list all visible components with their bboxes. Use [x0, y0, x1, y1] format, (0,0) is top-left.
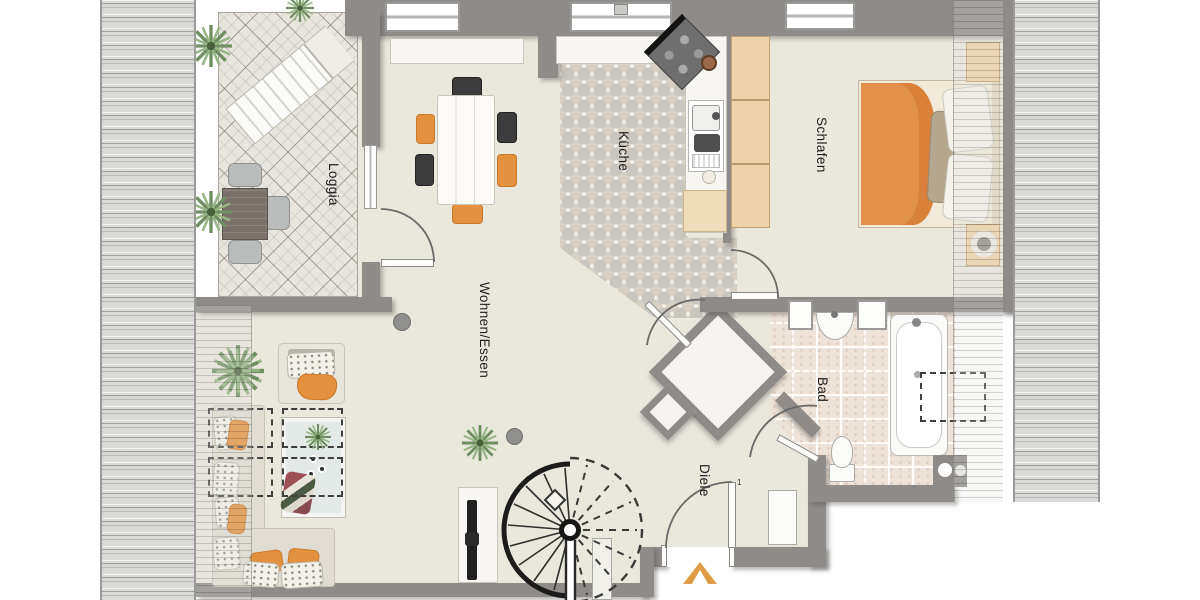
roof-overlay-left	[196, 305, 252, 600]
wall-stub-kitchen	[538, 36, 558, 78]
dining-chair	[416, 114, 435, 144]
dining-chair	[497, 112, 517, 143]
wall-bedroom-east	[1003, 0, 1013, 312]
wardrobe	[731, 36, 770, 228]
bed-blanket	[861, 83, 935, 225]
entrance-door-post	[661, 545, 667, 567]
stool	[506, 428, 523, 445]
sink-basin-dark	[694, 134, 720, 152]
basin-faucet-icon	[831, 311, 838, 318]
entrance-door-number: 1	[737, 478, 741, 487]
bed-blanket-fold	[861, 83, 919, 225]
room-label-bad: Bad	[815, 377, 830, 402]
tub-faucet-icon	[912, 318, 921, 327]
bowl-icon	[702, 170, 716, 184]
tv-stand	[465, 532, 479, 546]
bath-niche-right	[857, 300, 887, 330]
loggia-chair-bottom	[228, 240, 262, 264]
room-label-schlafen: Schlafen	[814, 117, 829, 173]
stair-side-wall	[592, 538, 612, 600]
hall-cabinet	[768, 490, 797, 545]
loggia-table	[222, 188, 268, 240]
dining-chair	[452, 204, 483, 224]
window-vent-icon	[614, 4, 628, 15]
loggia-door-leaf	[381, 259, 434, 267]
shaft-opening-icon	[938, 463, 952, 477]
toilet-bowl	[831, 436, 853, 468]
bedroom-door-leaf	[731, 292, 778, 300]
wall-loggia-east-lower	[362, 262, 380, 302]
room-label-kueche: Küche	[616, 131, 631, 171]
kitchen-cabinet-low	[683, 190, 727, 232]
dining-chair	[497, 154, 517, 187]
room-label-diele: Diele	[697, 464, 712, 497]
loggia-chair-top	[228, 163, 262, 187]
stool	[393, 313, 411, 331]
room-label-wohnen-essen: Wohnen/Essen	[477, 282, 492, 378]
armchair-throw	[297, 373, 338, 400]
floor-plan: 1	[0, 0, 1200, 600]
roof-band-right	[1013, 0, 1100, 502]
dining-table	[437, 95, 495, 205]
window-living	[385, 2, 460, 32]
bath-niche-left	[788, 300, 813, 330]
armchair	[278, 343, 345, 404]
window-bedroom	[785, 2, 855, 30]
entrance-door-leaf	[728, 482, 736, 548]
roof-band-left	[100, 0, 196, 600]
wall-loggia-east-upper	[362, 12, 380, 147]
bowl-icon	[701, 55, 717, 71]
loggia-glass-door	[364, 145, 377, 209]
roof-window-outline	[282, 408, 343, 448]
wall-living-hall-connector	[640, 547, 654, 597]
sink-drainer	[692, 154, 720, 168]
kitchen-sink	[688, 100, 724, 172]
roof-overlay-right	[953, 0, 1003, 502]
sideboard-top	[390, 38, 524, 64]
entrance-threshold	[666, 547, 730, 567]
dining-chair	[415, 154, 434, 186]
wall-hall-east	[808, 455, 826, 567]
roof-window-outline	[282, 457, 343, 497]
wall-bath-south	[808, 485, 955, 502]
sofa-pillow	[280, 561, 324, 590]
entrance-door-post	[729, 545, 735, 567]
sink-faucet-icon	[712, 112, 720, 120]
room-label-loggia: Loggia	[326, 163, 341, 206]
